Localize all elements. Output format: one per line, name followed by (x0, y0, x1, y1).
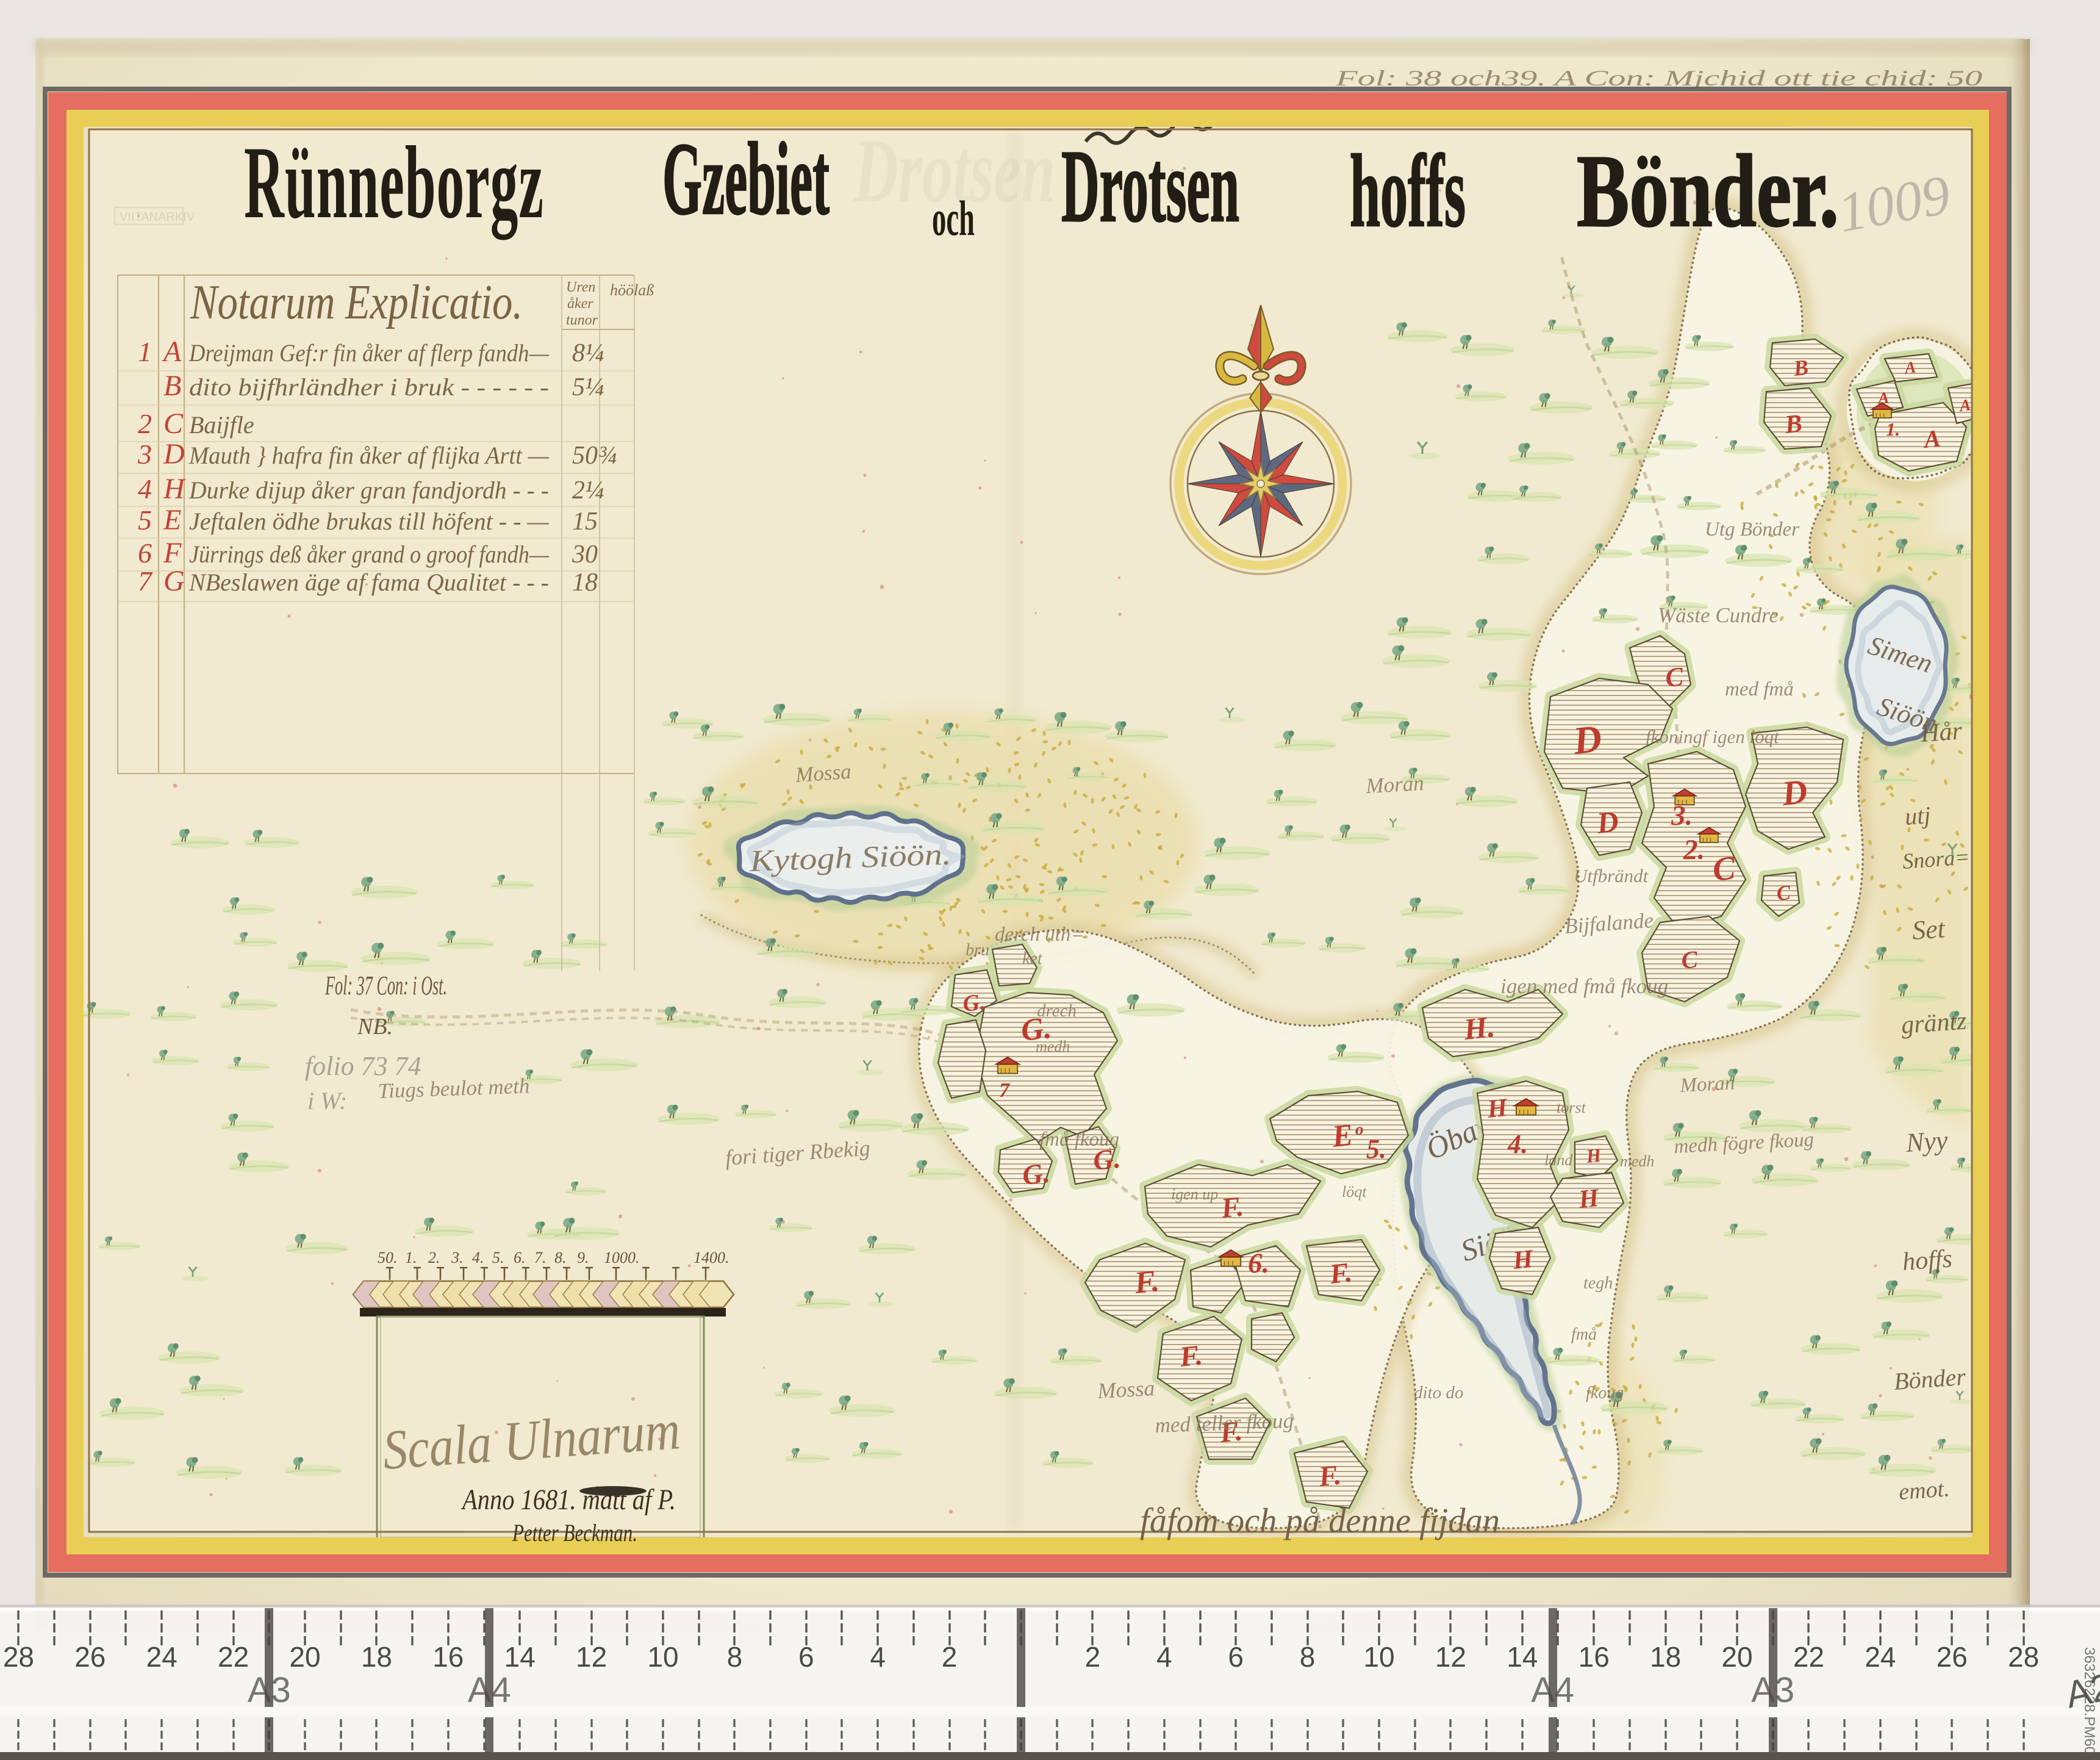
svg-text:2.: 2. (428, 1249, 440, 1266)
svg-text:4: 4 (870, 1641, 886, 1673)
svg-text:A3: A3 (1751, 1670, 1794, 1710)
svg-text:land: land (1544, 1151, 1573, 1169)
svg-text:4.: 4. (472, 1249, 484, 1266)
svg-text:hoffs: hoffs (1901, 1245, 1953, 1276)
svg-text:16: 16 (1579, 1641, 1610, 1673)
svg-text:18: 18 (361, 1641, 392, 1673)
svg-text:C: C (1664, 661, 1685, 693)
svg-text:F.: F. (1132, 1264, 1161, 1301)
svg-text:6: 6 (138, 537, 152, 569)
svg-text:5¼: 5¼ (572, 373, 604, 401)
svg-text:torst: torst (1557, 1099, 1586, 1116)
svg-text:5: 5 (138, 505, 152, 536)
svg-text:drech: drech (1037, 1001, 1077, 1021)
svg-text:4.: 4. (1507, 1129, 1528, 1159)
svg-text:26: 26 (1937, 1641, 1968, 1673)
svg-text:F.: F. (1317, 1459, 1342, 1492)
svg-text:ket: ket (1022, 949, 1043, 968)
svg-text:1.: 1. (1886, 418, 1900, 440)
svg-text:H: H (1511, 1245, 1535, 1275)
svg-text:22: 22 (218, 1641, 249, 1673)
svg-text:höölaß: höölaß (610, 281, 654, 299)
svg-text:VIITANARKIV: VIITANARKIV (120, 210, 195, 224)
svg-text:åker: åker (567, 296, 593, 312)
svg-text:6: 6 (798, 1641, 814, 1673)
svg-text:3: 3 (137, 439, 152, 470)
svg-text:8.: 8. (554, 1249, 567, 1266)
svg-text:7.: 7. (534, 1249, 547, 1266)
svg-text:F.: F. (1178, 1339, 1204, 1373)
svg-text:G: G (163, 565, 185, 597)
svg-text:emot.: emot. (1898, 1476, 1951, 1505)
svg-text:10: 10 (1363, 1641, 1394, 1673)
svg-text:2.: 2. (1683, 834, 1705, 866)
svg-text:Snora=: Snora= (1902, 844, 1971, 874)
svg-text:Baijfle: Baijfle (189, 411, 254, 439)
svg-text:7: 7 (999, 1079, 1011, 1102)
svg-text:8: 8 (727, 1641, 743, 1673)
svg-text:28: 28 (3, 1641, 34, 1673)
svg-text:G.: G. (1021, 1157, 1052, 1191)
svg-text:Bönder: Bönder (1893, 1363, 1966, 1395)
svg-text:3.: 3. (451, 1249, 464, 1266)
svg-text:fmå: fmå (1571, 1325, 1597, 1344)
svg-text:50¾: 50¾ (572, 442, 617, 470)
svg-text:Mossa: Mossa (1096, 1376, 1155, 1403)
svg-text:28: 28 (2008, 1641, 2039, 1673)
svg-text:H.: H. (1461, 1010, 1496, 1046)
svg-text:Moran: Moran (1364, 771, 1424, 798)
svg-text:igen up: igen up (1171, 1185, 1218, 1203)
svg-text:14: 14 (1507, 1641, 1538, 1673)
svg-text:4: 4 (1156, 1641, 1172, 1673)
svg-text:C: C (163, 408, 184, 440)
svg-text:hoffs: hoffs (1350, 134, 1466, 248)
svg-text:2¼: 2¼ (572, 476, 604, 505)
svg-text:B: B (1783, 409, 1804, 439)
svg-text:1400.: 1400. (693, 1249, 729, 1266)
svg-text:A: A (162, 336, 182, 368)
svg-text:H: H (1577, 1184, 1601, 1214)
svg-text:Utg Bönder: Utg Bönder (1705, 519, 1799, 541)
svg-text:löqt: löqt (1342, 1183, 1367, 1201)
svg-text:Nyy: Nyy (1904, 1125, 1949, 1158)
svg-text:derch uth=: derch uth= (995, 924, 1084, 946)
svg-text:och: och (932, 190, 975, 246)
svg-text:5.: 5. (492, 1249, 504, 1266)
svg-text:Mossa: Mossa (794, 760, 852, 787)
svg-text:Petter Beckman.: Petter Beckman. (512, 1519, 637, 1546)
svg-text:medh: medh (1036, 1038, 1070, 1055)
svg-text:fkoningf igen löqt: fkoningf igen löqt (1646, 726, 1780, 747)
svg-text:1: 1 (138, 336, 152, 367)
svg-text:Anno 1681. mätt af P.: Anno 1681. mätt af P. (460, 1484, 676, 1516)
svg-text:Notarum Explicatio.: Notarum Explicatio. (190, 276, 523, 329)
svg-text:D: D (163, 438, 185, 470)
svg-text:A4: A4 (1531, 1670, 1574, 1710)
svg-text:NB.: NB. (357, 1014, 393, 1040)
svg-text:tunor: tunor (566, 312, 598, 328)
svg-text:12: 12 (576, 1641, 607, 1673)
svg-text:10: 10 (647, 1641, 678, 1673)
svg-text:fåfom och på denne fijdan: fåfom och på denne fijdan (1140, 1501, 1500, 1540)
svg-text:A4: A4 (468, 1670, 511, 1710)
svg-text:Moran: Moran (1679, 1072, 1736, 1097)
svg-text:D: D (1594, 805, 1620, 841)
svg-text:Hår: Hår (1919, 717, 1963, 748)
svg-text:2: 2 (138, 408, 152, 439)
svg-text:utj: utj (1904, 801, 1931, 830)
svg-text:H: H (163, 473, 186, 505)
svg-text:30: 30 (572, 541, 598, 569)
svg-text:F.: F. (1328, 1256, 1353, 1290)
svg-text:Kytogh Siöön.: Kytogh Siöön. (748, 837, 951, 878)
svg-text:Jeftalen ödhe brukas till höfe: Jeftalen ödhe brukas till höfent - - — (189, 508, 549, 535)
svg-text:Uren: Uren (566, 279, 595, 295)
svg-text:Utfbrändt: Utfbrändt (1574, 865, 1649, 886)
svg-text:4: 4 (138, 473, 152, 505)
svg-text:gräntz: gräntz (1900, 1007, 1967, 1040)
svg-text:D: D (1571, 716, 1604, 763)
svg-text:16: 16 (432, 1641, 464, 1673)
svg-text:igen med fmå fkoug: igen med fmå fkoug (1500, 974, 1668, 998)
svg-text:18: 18 (572, 569, 598, 597)
svg-text:18: 18 (1650, 1641, 1681, 1673)
svg-text:Fol: 38 och39. A Con: Mjchid o: Fol: 38 och39. A Con: Mjchid ott tie chi… (1335, 66, 1982, 90)
svg-text:2: 2 (1085, 1641, 1101, 1673)
svg-text:fkoug: fkoug (1586, 1384, 1624, 1403)
svg-text:Gzebiet: Gzebiet (662, 121, 830, 236)
svg-text:26: 26 (74, 1641, 106, 1673)
svg-text:C: C (1776, 882, 1792, 905)
svg-text:Rünneborgz: Rünneborgz (244, 125, 544, 240)
svg-text:tegh: tegh (1583, 1274, 1613, 1293)
svg-text:7: 7 (138, 566, 153, 597)
svg-text:D: D (1780, 772, 1810, 813)
svg-text:F.: F. (1219, 1190, 1245, 1224)
svg-text:Jürrings deß åker grand o groo: Jürrings deß åker grand o groof fandh— (189, 541, 549, 568)
svg-text:20: 20 (289, 1641, 320, 1673)
svg-text:NBeslawen äge af fama Qualitet: NBeslawen äge af fama Qualitet - - - (188, 569, 549, 596)
svg-text:Set: Set (1911, 913, 1947, 946)
svg-text:Wäste Cundre: Wäste Cundre (1658, 603, 1779, 627)
svg-text:H: H (1485, 1094, 1510, 1124)
svg-text:Drotsen: Drotsen (1061, 129, 1239, 243)
svg-text:E: E (163, 504, 181, 536)
svg-text:fmå fkoug: fmå fkoug (1039, 1129, 1119, 1151)
svg-text:1.: 1. (405, 1249, 417, 1266)
svg-text:15: 15 (572, 508, 598, 536)
svg-text:Mauth } hafra fin åker af fli: Mauth } hafra fin åker af flijka Artt — (188, 442, 549, 469)
svg-text:A3: A3 (248, 1670, 291, 1710)
svg-text:bru: bru (966, 941, 989, 960)
svg-text:Dreijman Gef:r fin åker af fle: Dreijman Gef:r fin åker af flerp fandh— (188, 339, 549, 367)
svg-text:dito do: dito do (1414, 1383, 1463, 1403)
svg-text:24: 24 (1865, 1641, 1896, 1673)
svg-text:1000.: 1000. (604, 1249, 640, 1266)
svg-text:50.: 50. (378, 1249, 398, 1266)
svg-text:Bönder.: Bönder. (1577, 134, 1839, 248)
svg-text:dito bijfhrländher i bruk -: dito bijfhrländher i bruk - - - - - - (189, 373, 549, 401)
svg-text:14: 14 (504, 1641, 536, 1673)
svg-text:E: E (1330, 1118, 1355, 1154)
svg-text:6.: 6. (1248, 1248, 1269, 1279)
svg-text:B: B (1792, 355, 1810, 381)
svg-text:G.: G. (962, 989, 987, 1017)
svg-text:20: 20 (1721, 1641, 1752, 1673)
svg-text:5.: 5. (1366, 1134, 1386, 1164)
svg-text:22: 22 (1793, 1641, 1824, 1673)
svg-text:3.: 3. (1671, 800, 1693, 832)
svg-text:o: o (1355, 1120, 1364, 1138)
svg-text:i W:: i W: (307, 1087, 347, 1115)
svg-text:6.: 6. (514, 1249, 526, 1266)
svg-text:H: H (1585, 1144, 1603, 1168)
svg-text:Durke dijup åker gran fandjord: Durke dijup åker gran fandjordh - - - (188, 476, 549, 504)
svg-text:B: B (163, 370, 181, 402)
svg-text:8: 8 (1300, 1641, 1316, 1673)
svg-text:med teller fkoug: med teller fkoug (1155, 1409, 1294, 1437)
svg-text:6: 6 (1228, 1641, 1244, 1673)
svg-text:12: 12 (1435, 1641, 1466, 1673)
svg-text:Fol: 37 Con: i Ost.: Fol: 37 Con: i Ost. (324, 971, 447, 1000)
svg-text:med fmå: med fmå (1725, 678, 1794, 700)
svg-text:8¼: 8¼ (572, 339, 604, 367)
svg-text:24: 24 (146, 1641, 177, 1673)
svg-text:9.: 9. (577, 1249, 589, 1266)
svg-text:medh: medh (1620, 1152, 1654, 1170)
svg-text:folio 73 74: folio 73 74 (305, 1051, 421, 1081)
svg-text:2: 2 (942, 1641, 958, 1673)
